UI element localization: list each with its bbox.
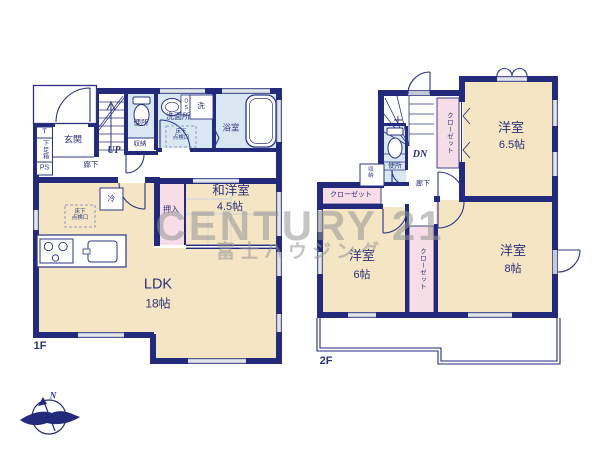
floor-hatch-washroom-label: 床下点検口 [173,130,190,142]
washitsu-name-label: 和洋室 [212,184,250,197]
floorplan-canvas: 1F 玄関 T 下足箱 PS UP 廊下 便所 収納 洗面所 DS 洗 床下点検… [0,0,600,450]
compass-north-label: N [50,391,57,400]
faucet-icon [83,249,90,254]
room-8 [436,200,554,314]
room-65-size-label: 6.5帖 [499,140,525,152]
closet-a-label: クローゼット [445,112,452,154]
toilet-storage-label: 収納 [134,142,147,149]
toilet-2f-bowl-icon [388,138,402,158]
oshiire-label: 押入 [163,206,179,214]
ldk-name-label: LDK [144,277,172,292]
duct-space-label: DS [183,99,189,112]
hallway-2f-label: 廊下 [416,180,430,187]
storage-2f-label: 収納 [366,166,372,178]
room-8-size-label: 8帖 [504,264,521,276]
washroom-label: 洗面所 [166,113,190,121]
hallway-1f-label: 廊下 [84,161,99,169]
closet-c-label: クローゼット [418,248,425,290]
floor1-label: 1F [34,341,47,353]
room-oshiire [160,184,184,245]
entrance-label: 玄関 [64,135,82,144]
balcony-door [558,250,580,272]
toilet-1f-door [126,155,144,173]
floor-hatch-ldk-label: 床下点検口 [72,210,89,222]
washitsu-size-label: 4.5帖 [217,202,243,214]
bathroom-label: 浴室 [222,124,239,133]
toilet-1f-label: 便所 [134,119,149,127]
room-8-name-label: 洋室 [500,244,526,258]
stairs-down-label: DN [413,150,427,161]
room-6-size-label: 6帖 [353,270,370,282]
toilet-2f-tank-icon [387,128,403,135]
room-65-double-window [497,69,527,76]
compass-icon [20,397,80,434]
stairs-up-label: UP [107,146,120,157]
kitchen-sink-icon [88,241,117,262]
fridge-label: 冷 [108,195,116,203]
floor2-label: 2F [320,356,333,368]
room-65-name-label: 洋室 [498,121,524,135]
bathtub-icon [246,95,276,147]
toilet-tank-icon [133,97,150,104]
room-6-name-label: 洋室 [349,249,375,263]
t-box-label: T [42,128,46,135]
balcony-outline [317,318,560,364]
floorplan-drawing [0,0,600,450]
shoe-box-label: 下足箱 [41,140,47,160]
fixtures-2f [387,128,403,158]
toilet-2f-label: 便所 [388,162,402,169]
stairs-1f [99,96,124,152]
ldk-size-label: 18帖 [145,298,170,311]
washer-pan-label: 洗 [197,102,205,110]
pipe-space-label: PS [40,164,49,171]
stove-icon [40,239,73,263]
porch-outline [34,86,97,124]
closet-b-label: クローゼット [330,191,372,198]
